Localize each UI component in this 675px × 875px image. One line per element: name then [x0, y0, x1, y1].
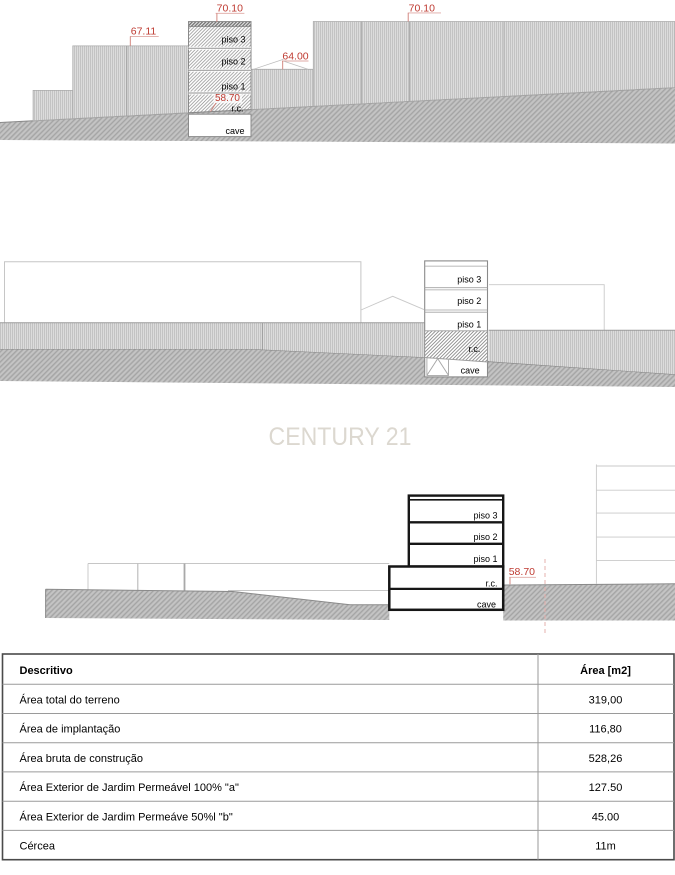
svg-text:cave: cave [477, 600, 496, 610]
svg-text:piso 2: piso 2 [473, 532, 497, 542]
svg-text:Cércea: Cércea [20, 841, 56, 853]
svg-text:piso 1: piso 1 [221, 82, 245, 92]
svg-text:Área de implantação: Área de implantação [20, 723, 121, 736]
svg-text:cave: cave [461, 366, 480, 376]
svg-text:piso 3: piso 3 [473, 511, 497, 521]
svg-text:Área Exterior de Jardim Permeá: Área Exterior de Jardim Permeável 100% "… [20, 781, 239, 794]
svg-text:67.11: 67.11 [131, 26, 157, 38]
svg-text:Área total do terreno: Área total do terreno [20, 693, 120, 706]
svg-text:cave: cave [225, 126, 244, 136]
svg-text:piso 3: piso 3 [221, 35, 245, 45]
svg-text:64.00: 64.00 [282, 50, 308, 62]
svg-text:r.c.: r.c. [485, 578, 497, 588]
svg-text:r.c.: r.c. [468, 344, 480, 354]
svg-text:piso 2: piso 2 [221, 57, 245, 67]
svg-text:116,80: 116,80 [589, 724, 622, 736]
svg-text:Área [m2]: Área [m2] [580, 664, 631, 677]
svg-text:Área Exterior de Jardim Permeá: Área Exterior de Jardim Permeáve 50%l "b… [20, 810, 233, 823]
svg-text:Área bruta de construção: Área bruta de construção [20, 752, 144, 765]
svg-text:11m: 11m [595, 841, 616, 853]
svg-text:r.c.: r.c. [231, 103, 243, 113]
svg-text:CENTURY 21: CENTURY 21 [269, 423, 412, 451]
svg-text:70.10: 70.10 [217, 2, 243, 14]
svg-text:319,00: 319,00 [589, 694, 623, 706]
svg-text:piso 1: piso 1 [457, 319, 481, 329]
svg-text:piso 1: piso 1 [473, 554, 497, 564]
svg-text:piso 2: piso 2 [457, 296, 481, 306]
svg-text:528,26: 528,26 [589, 753, 623, 765]
svg-text:58.70: 58.70 [509, 566, 535, 578]
svg-text:piso 3: piso 3 [457, 274, 481, 284]
svg-text:Descritivo: Descritivo [20, 665, 73, 677]
svg-text:45.00: 45.00 [592, 811, 620, 823]
svg-text:127.50: 127.50 [589, 782, 623, 794]
